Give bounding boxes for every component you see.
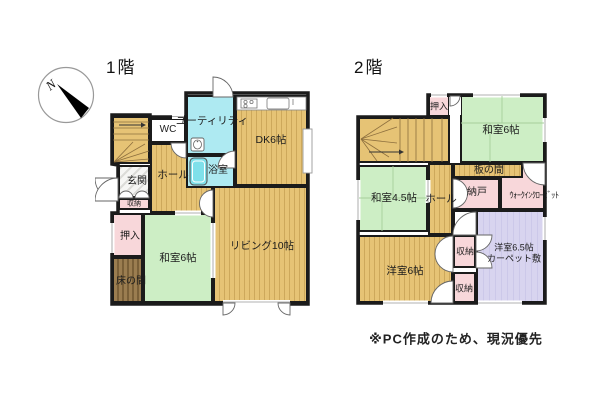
floor2-plan: 押入 和室6帖 板の間 和室4.5帖 ホール 納戸 ｳｫｰｸｲﾝｸﾛｰｾﾞｯﾄ … <box>345 75 575 320</box>
label-2f-itanoma: 板の間 <box>474 166 504 176</box>
label-1f-genkan: 玄関 <box>127 177 147 187</box>
room-2f-stairs <box>358 117 450 163</box>
footnote: ※PC作成のため、現況優先 <box>369 329 543 348</box>
floor1-plan: WC ユーティリティ DK6帖 浴室 ホール 玄関 収納 押入 和室6帖 床の間… <box>95 75 325 320</box>
label-2f-oshiire: 押入 <box>430 103 448 112</box>
label-1f-bath: 浴室 <box>208 166 228 176</box>
label-2f-washitsu45: 和室4.5帖 <box>371 193 417 204</box>
label-1f-living: リビング10帖 <box>230 241 294 252</box>
label-2f-shuno-lower: 収納 <box>455 285 473 294</box>
label-2f-yoshitsu6: 洋室6帖 <box>386 266 423 277</box>
label-2f-yoshitsu65: 洋室6.5帖 <box>494 244 534 253</box>
label-1f-utility: ユーティリティ <box>176 116 248 127</box>
label-1f-dk: DK6帖 <box>256 135 287 146</box>
floorplan-canvas: N 1階 2階 <box>0 0 600 400</box>
label-1f-wc: WC <box>160 125 177 135</box>
room-2f-corridor <box>453 210 476 235</box>
label-2f-shuno-upper: 収納 <box>456 248 474 257</box>
label-2f-wic: ｳｫｰｸｲﾝｸﾛｰｾﾞｯﾄ <box>509 191 558 200</box>
label-1f-tokonoma: 床の間 <box>116 277 146 287</box>
label-2f-hall: ホール <box>425 194 457 205</box>
label-2f-nando: 納戸 <box>467 188 487 198</box>
label-2f-yoshitsu65-sub: カーペット敷 <box>487 255 541 264</box>
compass-icon: N <box>37 66 95 124</box>
label-1f-washitsu6: 和室6帖 <box>159 253 196 264</box>
label-1f-oshiire: 押入 <box>120 232 140 242</box>
room-1f-stairs <box>112 116 150 164</box>
label-1f-hall: ホール <box>157 170 189 181</box>
label-1f-genkan-shuno: 収納 <box>127 201 141 208</box>
label-2f-washitsu6: 和室6帖 <box>482 125 519 136</box>
